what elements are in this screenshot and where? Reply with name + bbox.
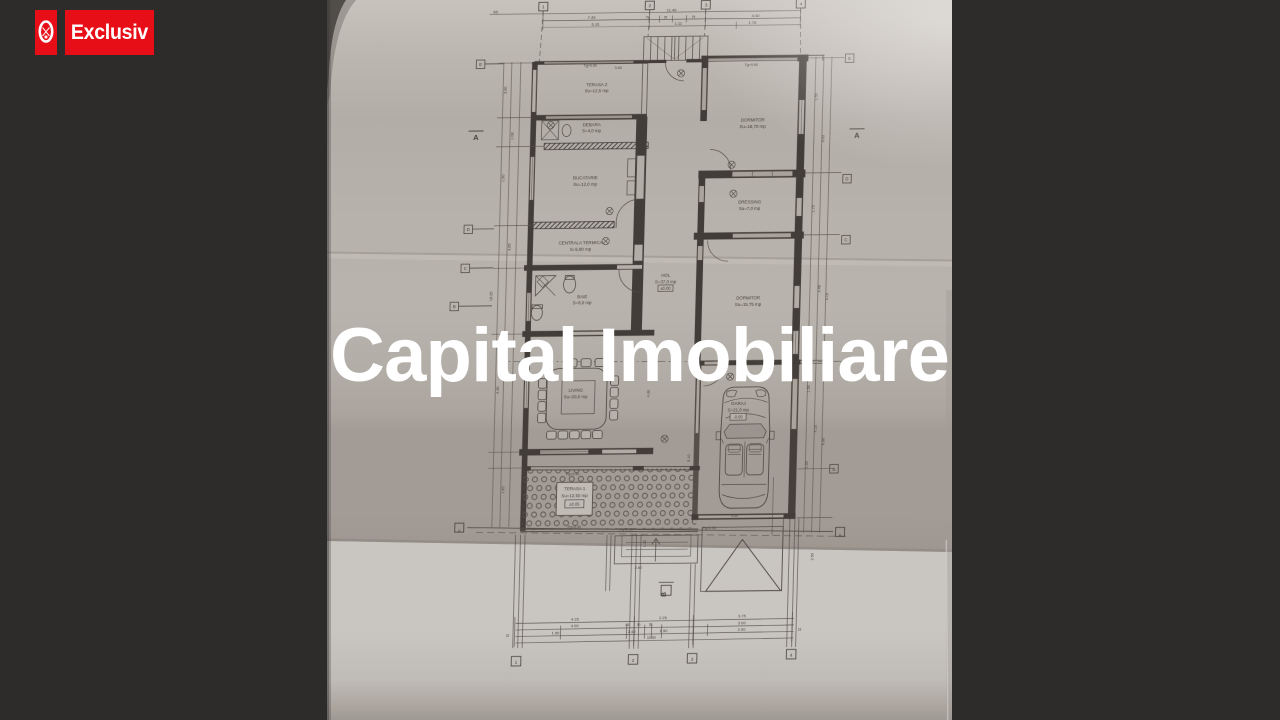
svg-text:Pg=0.90: Pg=0.90 (702, 526, 716, 530)
svg-text:E: E (479, 62, 482, 67)
svg-text:1.08: 1.08 (510, 132, 514, 139)
svg-text:±0.00: ±0.00 (660, 286, 671, 291)
svg-text:S=21,0 mp: S=21,0 mp (728, 407, 750, 412)
svg-text:2.50: 2.50 (810, 553, 814, 560)
svg-text:55: 55 (625, 623, 629, 627)
svg-text:2.25: 2.25 (659, 615, 668, 620)
svg-text:C: C (464, 266, 467, 271)
svg-text:TERASA 1: TERASA 1 (564, 486, 586, 491)
svg-text:7.49: 7.49 (588, 15, 597, 20)
svg-text:DEBARA: DEBARA (583, 122, 601, 127)
svg-text:3.60: 3.60 (504, 87, 508, 94)
svg-text:1.75: 1.75 (811, 205, 815, 212)
svg-text:15: 15 (798, 628, 802, 632)
svg-text:5.15: 5.15 (591, 22, 600, 27)
svg-text:5.10: 5.10 (687, 454, 691, 461)
svg-text:1.20: 1.20 (643, 540, 647, 547)
svg-text:1.00: 1.00 (805, 461, 809, 468)
svg-text:11.40: 11.40 (667, 7, 678, 12)
svg-text:Su=7,0 mp: Su=7,0 mp (739, 206, 761, 211)
svg-text:6.00: 6.00 (821, 438, 825, 445)
svg-text:15: 15 (506, 634, 510, 638)
svg-text:C: C (844, 237, 847, 242)
svg-text:1.11: 1.11 (675, 21, 683, 26)
svg-text:2.40: 2.40 (635, 566, 642, 570)
svg-text:4.00: 4.00 (571, 623, 580, 628)
svg-text:4.25: 4.25 (571, 617, 580, 622)
svg-text:DORMITOR: DORMITOR (736, 295, 760, 300)
svg-text:S=4,0 mp: S=4,0 mp (582, 128, 602, 133)
svg-text:4.15: 4.15 (825, 293, 829, 300)
svg-text:S=37,0 mp: S=37,0 mp (655, 279, 677, 284)
svg-text:B: B (661, 592, 668, 597)
svg-text:-0.05: -0.05 (733, 415, 743, 420)
svg-text:3.50: 3.50 (731, 514, 738, 518)
svg-text:HOL: HOL (661, 273, 671, 278)
svg-text:D: D (467, 227, 470, 232)
svg-text:Pg=0.90: Pg=0.90 (567, 525, 581, 529)
svg-text:Su=12,50 mp: Su=12,50 mp (561, 493, 588, 498)
svg-text:55: 55 (649, 623, 653, 627)
svg-text:S=5,80 mp: S=5,80 mp (570, 247, 592, 252)
svg-text:3.85: 3.85 (507, 243, 511, 250)
svg-text:±0.05: ±0.05 (569, 502, 580, 507)
svg-text:3.75: 3.75 (738, 613, 747, 618)
svg-text:2.40: 2.40 (628, 629, 637, 634)
svg-text:2.90: 2.90 (738, 627, 747, 632)
svg-text:DRESSING: DRESSING (738, 199, 762, 204)
svg-text:1.95: 1.95 (501, 486, 505, 493)
svg-text:Pg=0.90: Pg=0.90 (566, 472, 580, 476)
svg-text:90: 90 (637, 623, 641, 627)
svg-text:BAIE: BAIE (577, 294, 587, 299)
svg-text:2.48: 2.48 (817, 285, 821, 292)
svg-text:Su=18,70 mp: Su=18,70 mp (739, 124, 766, 129)
svg-text:BUCATARIE: BUCATARIE (573, 175, 598, 180)
svg-text:Tg+0.90: Tg+0.90 (584, 64, 597, 68)
svg-text:Su=12,5 mp: Su=12,5 mp (585, 88, 609, 93)
svg-text:1.50: 1.50 (501, 175, 505, 182)
svg-text:Pg=0.90: Pg=0.90 (619, 528, 633, 532)
svg-text:B: B (832, 467, 835, 472)
svg-text:29: 29 (664, 15, 668, 19)
svg-text:3.00: 3.00 (738, 620, 747, 625)
svg-text:1.50: 1.50 (660, 628, 669, 633)
svg-text:CENTRALA TERMICA: CENTRALA TERMICA (559, 240, 603, 245)
svg-text:4.10: 4.10 (814, 425, 818, 432)
svg-text:A: A (473, 133, 479, 142)
svg-text:79: 79 (646, 15, 650, 19)
svg-text:D: D (845, 176, 848, 181)
svg-text:1.50: 1.50 (552, 630, 561, 635)
svg-text:18.25: 18.25 (489, 292, 493, 302)
svg-text:Su=12,0 mp: Su=12,0 mp (573, 182, 597, 187)
svg-text:3.45: 3.45 (615, 66, 622, 70)
svg-text:TERASA 2: TERASA 2 (586, 82, 608, 87)
svg-text:10.50: 10.50 (647, 636, 656, 640)
